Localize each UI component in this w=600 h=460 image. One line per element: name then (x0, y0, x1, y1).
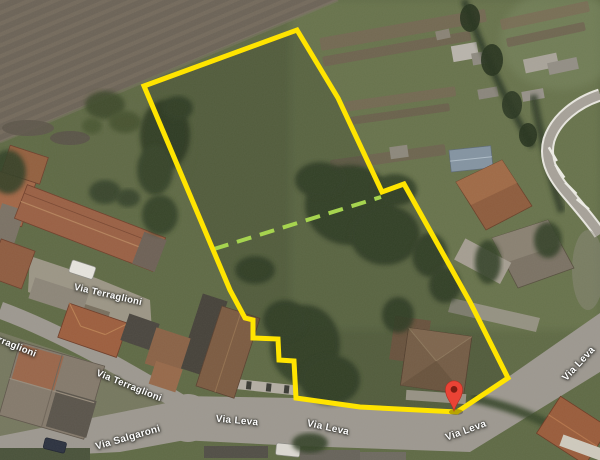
satellite-imagery[interactable] (0, 0, 600, 460)
grain-overlay (0, 0, 600, 460)
pin-inner-dot (451, 386, 458, 393)
pin-shadow (449, 409, 463, 415)
satellite-map[interactable]: Via Terraglioni Terraglioni Via Terragli… (0, 0, 600, 460)
